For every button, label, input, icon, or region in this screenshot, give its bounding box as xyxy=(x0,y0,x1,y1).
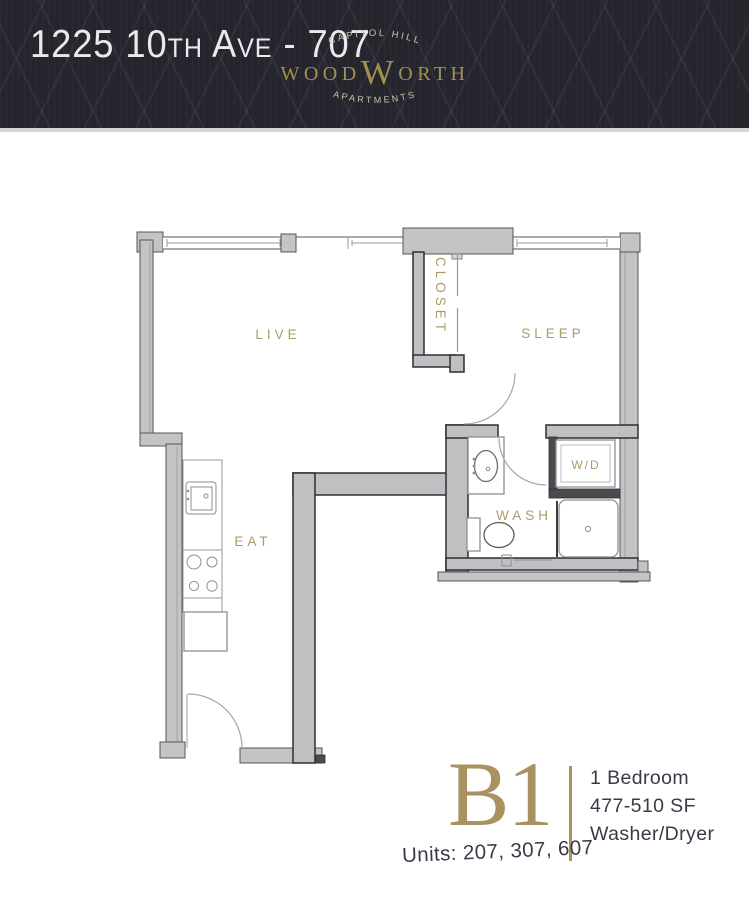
plan-details: 1 Bedroom 477-510 SF Washer/Dryer xyxy=(590,764,714,848)
detail-bedrooms: 1 Bedroom xyxy=(590,764,714,792)
refrigerator xyxy=(184,612,227,651)
corner-top-right xyxy=(620,233,640,252)
shower xyxy=(559,500,618,557)
bath-sink xyxy=(475,451,498,482)
live-label: LIVE xyxy=(255,327,300,342)
kitchen xyxy=(183,460,227,651)
wall-header-block xyxy=(403,228,513,254)
plan-code: B1 xyxy=(448,748,568,840)
wash-label: WASH xyxy=(496,508,552,523)
closet: CLOSET xyxy=(413,252,464,372)
sleep-label: SLEEP xyxy=(521,326,585,341)
toilet-tank xyxy=(467,518,480,551)
window-wall xyxy=(163,228,620,259)
bedroom-door-swing xyxy=(464,373,515,424)
detail-laundry: Washer/Dryer xyxy=(590,820,714,848)
corner-bottom-left xyxy=(160,742,185,758)
detail-sqft: 477-510 SF xyxy=(590,792,714,820)
bathroom xyxy=(467,437,620,566)
entry-door-swing xyxy=(188,694,242,748)
closet-label: CLOSET xyxy=(433,257,448,335)
window-mullion xyxy=(281,234,296,252)
toilet-bowl xyxy=(484,523,514,548)
wd-label: W/D xyxy=(571,458,600,472)
flyer-page: 1225 10th Ave - 707 CAPITOL HILL WOODWOR… xyxy=(0,0,749,900)
bath-door-swing xyxy=(499,438,546,485)
eat-label: EAT xyxy=(234,534,271,549)
